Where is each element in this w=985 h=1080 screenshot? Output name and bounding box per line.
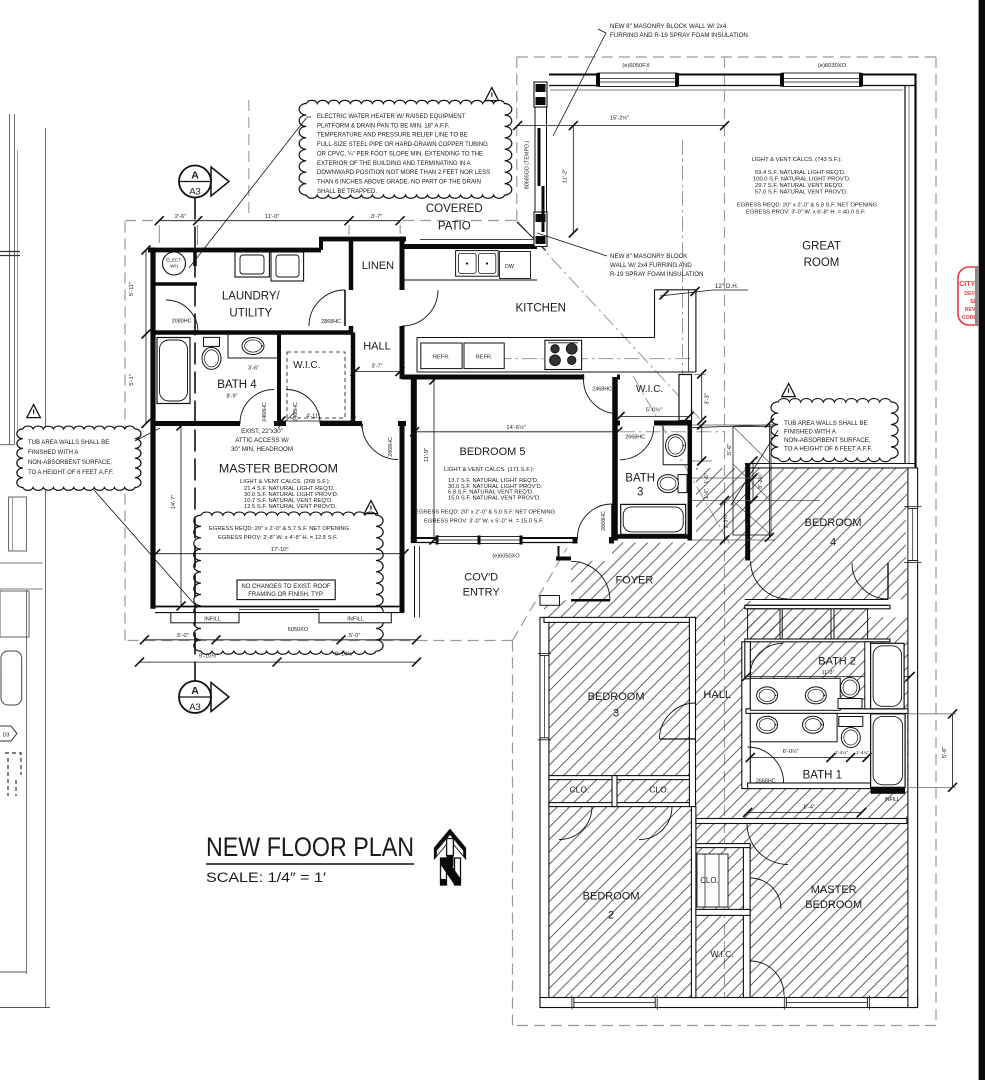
svg-text:REFR.: REFR. [433, 355, 450, 361]
svg-text:DW: DW [505, 264, 515, 270]
svg-text:15′-2½″: 15′-2½″ [610, 115, 630, 122]
svg-text:D3: D3 [3, 732, 10, 738]
svg-text:57.0 S.F. NATURAL VENT PROV′D.: 57.0 S.F. NATURAL VENT PROV′D. [755, 190, 848, 196]
svg-text:FINISHED WITH A: FINISHED WITH A [784, 428, 837, 435]
svg-text:100.0 S.F. NATURAL LIGHT PROV′: 100.0 S.F. NATURAL LIGHT PROV′D. [753, 177, 851, 183]
svg-text:W.I.C.: W.I.C. [293, 360, 320, 371]
svg-text:TO A HEIGHT OF 6 FEET A.F.F.: TO A HEIGHT OF 6 FEET A.F.F. [784, 445, 873, 452]
svg-text:GREAT: GREAT [802, 241, 841, 253]
svg-text:3′-6″: 3′-6″ [248, 366, 259, 372]
svg-text:3′-7″: 3′-7″ [371, 364, 382, 370]
svg-text:INFILL: INFILL [204, 617, 221, 623]
svg-text:CLO.: CLO. [700, 876, 719, 885]
svg-text:REFR.: REFR. [476, 355, 493, 361]
svg-text:BEDROOM: BEDROOM [805, 517, 862, 529]
svg-text:TUB AREA WALLS SHALL BE: TUB AREA WALLS SHALL BE [784, 420, 868, 427]
svg-text:5′-0½″: 5′-0½″ [646, 407, 662, 414]
svg-text:8′-4″: 8′-4″ [804, 805, 816, 811]
svg-text:BEDROOM: BEDROOM [805, 899, 862, 911]
svg-text:14′-6½″: 14′-6½″ [506, 424, 526, 431]
svg-text:8′-9″: 8′-9″ [226, 394, 237, 400]
svg-text:PATIO: PATIO [438, 221, 471, 233]
svg-text:TO A HEIGHT OF 6 FEET A.F.F.: TO A HEIGHT OF 6 FEET A.F.F. [28, 470, 114, 476]
svg-text:ELECT.: ELECT. [166, 258, 182, 263]
svg-text:EGRESS PROV: 3′-0″ W. x 5′-0″: EGRESS PROV: 3′-0″ W. x 5′-0″ H. = 15.0 … [424, 519, 544, 525]
svg-text:EGRESS REQD: 20″ x 2′-0″ & 5.: EGRESS REQD: 20″ x 2′-0″ & 5.0 S.F. NET … [737, 203, 878, 209]
svg-text:FRAMING OR FINISH, TYP.: FRAMING OR FINISH, TYP. [248, 592, 324, 598]
svg-text:INFILL: INFILL [885, 797, 900, 803]
svg-text:4: 4 [830, 537, 836, 549]
svg-text:6050XO: 6050XO [288, 627, 309, 633]
svg-text:11′-0″: 11′-0″ [265, 214, 279, 220]
svg-text:TUB AREA WALLS SHALL BE: TUB AREA WALLS SHALL BE [28, 440, 109, 446]
svg-text:14′-7″: 14′-7″ [171, 495, 177, 510]
svg-text:LIGHT & VENT CALCS. (268 S.F.): LIGHT & VENT CALCS. (268 S.F.): [240, 479, 331, 485]
svg-text:(e)6050XO: (e)6050XO [492, 554, 520, 560]
svg-text:ELECTRIC WATER HEATER W/ RAISE: ELECTRIC WATER HEATER W/ RAISED EQUIPMEN… [317, 114, 466, 120]
svg-text:11′-2″: 11′-2″ [563, 169, 569, 183]
svg-text:INFILL: INFILL [347, 617, 364, 623]
svg-text:OR CPVC, ¼″ PER FOOT SLOPE MIN: OR CPVC, ¼″ PER FOOT SLOPE MIN. EXTENDIN… [317, 151, 483, 157]
svg-text:EGRESS REQD: 20″ x 2′-0″ & 5.: EGRESS REQD: 20″ x 2′-0″ & 5.0 S.F. NET … [415, 509, 556, 515]
svg-text:A: A [191, 685, 199, 697]
svg-text:11′-9″: 11′-9″ [424, 448, 430, 462]
svg-text:HALL: HALL [703, 689, 731, 701]
svg-text:8′-2½″: 8′-2½″ [757, 472, 764, 488]
svg-text:COVERED: COVERED [426, 203, 483, 215]
svg-text:BEDROOM: BEDROOM [588, 691, 645, 703]
svg-text:1′-4¼″: 1′-4¼″ [835, 750, 848, 755]
svg-text:5′-11″: 5′-11″ [129, 282, 135, 296]
svg-text:5′-0″: 5′-0″ [349, 633, 361, 639]
svg-text:2468HC: 2468HC [262, 402, 268, 422]
svg-text:HALL: HALL [363, 340, 391, 352]
svg-text:17′-10″: 17′-10″ [271, 547, 289, 553]
svg-text:5′-6″: 5′-6″ [942, 747, 948, 759]
svg-text:NEW 8″ MASONRY BLOCK WALL W/ 2: NEW 8″ MASONRY BLOCK WALL W/ 2x4 [610, 23, 727, 30]
svg-text:LIGHT & VENT CALCS. (171 S.F.): LIGHT & VENT CALCS. (171 S.F.): [444, 467, 535, 473]
svg-text:2′-6″: 2′-6″ [175, 214, 187, 220]
svg-text:MASTER: MASTER [811, 884, 857, 896]
svg-text:KITCHEN: KITCHEN [515, 303, 565, 315]
svg-text:2468HC: 2468HC [592, 387, 612, 393]
svg-text:BATH 4: BATH 4 [217, 379, 257, 391]
svg-text:W.I.C.: W.I.C. [636, 384, 663, 395]
svg-text:BATH 1: BATH 1 [803, 769, 842, 781]
svg-text:LIGHT & VENT CALCS. (743 S.F.): LIGHT & VENT CALCS. (743 S.F.): [752, 157, 843, 163]
svg-text:FURRING AND R-19 SPRAY FOAM IN: FURRING AND R-19 SPRAY FOAM INSULATION [610, 32, 748, 39]
svg-text:15.0 S.F. NATURAL VENT PROV′D.: 15.0 S.F. NATURAL VENT PROV′D. [448, 495, 541, 501]
svg-text:CLO.: CLO. [569, 784, 589, 794]
svg-text:BEDROOM 5: BEDROOM 5 [459, 446, 525, 458]
svg-text:W.I.C.: W.I.C. [711, 949, 734, 959]
svg-text:5′-0″: 5′-0″ [177, 633, 189, 639]
svg-text:DOWNWARD POSITION NOT MORE THA: DOWNWARD POSITION NOT MORE THAN 2 FEET N… [317, 170, 490, 176]
svg-text:A3: A3 [189, 187, 201, 198]
svg-text:EGRESS PROV: 2′-8″ W. x 4′-8″: EGRESS PROV: 2′-8″ W. x 4′-8″ H. = 12.5 … [218, 535, 338, 541]
svg-text:3: 3 [637, 486, 643, 498]
svg-text:80685GD (TEMPD.): 80685GD (TEMPD.) [525, 141, 531, 190]
svg-text:ATTIC ACCESS W/: ATTIC ACCESS W/ [235, 437, 289, 444]
svg-text:SCALE: 1/4″ = 1′: SCALE: 1/4″ = 1′ [206, 870, 327, 885]
svg-text:29.7 S.F. NATURAL VENT REQ′D.: 29.7 S.F. NATURAL VENT REQ′D. [755, 183, 844, 189]
svg-text:R-19 SPRAY FOAM INSULATION: R-19 SPRAY FOAM INSULATION [610, 271, 704, 278]
svg-text:12″ O.H.: 12″ O.H. [715, 283, 739, 290]
svg-text:THAN 6 INCHES ABOVE GRADE. NO: THAN 6 INCHES ABOVE GRADE. NO PART OF TH… [317, 179, 481, 185]
svg-text:1′-6″: 1′-6″ [704, 473, 710, 483]
svg-text:1′-4¼″: 1′-4¼″ [856, 750, 869, 755]
svg-text:EXIST, 22″x30″: EXIST, 22″x30″ [241, 428, 284, 435]
svg-text:EGRESS PROV: 3′-0″ W. x 6′-8″: EGRESS PROV: 3′-0″ W. x 6′-8″ H. = 40.0 … [746, 210, 866, 216]
svg-text:5′-1″: 5′-1″ [129, 374, 135, 386]
svg-text:LINEN: LINEN [362, 260, 394, 272]
svg-text:FULL-SIZE STEEL PIPE OR HARD-D: FULL-SIZE STEEL PIPE OR HARD-DRAWN COPPE… [317, 142, 488, 148]
svg-text:BEDROOM: BEDROOM [583, 890, 640, 902]
svg-text:ROOM: ROOM [804, 257, 840, 269]
svg-text:9′-10½″: 9′-10½″ [199, 652, 219, 659]
svg-text:BATH 2: BATH 2 [818, 656, 856, 668]
svg-text:9′-10½″: 9′-10½″ [335, 650, 355, 657]
svg-text:WH: WH [170, 264, 178, 269]
svg-text:NEW 8″ MASONRY BLOCK: NEW 8″ MASONRY BLOCK [610, 253, 688, 260]
svg-text:NON-ABSORBENT SURFACE,: NON-ABSORBENT SURFACE, [784, 437, 871, 444]
svg-text:59.4 S.F. NATURAL LIGHT REQ′D.: 59.4 S.F. NATURAL LIGHT REQ′D. [755, 170, 846, 176]
svg-text:2: 2 [608, 910, 614, 922]
svg-text:EXTERIOR OF THE BUILDING AND T: EXTERIOR OF THE BUILDING AND TERMINATING… [317, 161, 471, 167]
svg-text:EGRESS REQD: 20″ x 2′-0″ & 5.: EGRESS REQD: 20″ x 2′-0″ & 5.7 S.F. NET … [209, 526, 350, 532]
svg-text:SHALL BE TRAPPED.: SHALL BE TRAPPED. [317, 189, 377, 195]
svg-text:A: A [191, 170, 199, 182]
svg-text:(e)6050FX: (e)6050FX [622, 63, 650, 69]
svg-text:11′-3″: 11′-3″ [822, 670, 835, 676]
svg-text:5′-6″: 5′-6″ [727, 444, 733, 456]
svg-text:2868HC: 2868HC [388, 437, 394, 457]
svg-text:3: 3 [613, 708, 619, 720]
svg-text:BATH: BATH [625, 472, 655, 484]
svg-text:MASTER BEDROOM: MASTER BEDROOM [219, 462, 338, 476]
svg-text:2080HC: 2080HC [172, 319, 192, 325]
svg-text:3′-3″: 3′-3″ [705, 393, 711, 405]
svg-text:2868HC: 2868HC [321, 319, 341, 325]
svg-text:NO CHANGES TO EXIST. ROOF: NO CHANGES TO EXIST. ROOF [241, 584, 330, 590]
svg-text:PLATFORM & DRAIN PAN TO BE MIN: PLATFORM & DRAIN PAN TO BE MIN. 18″ A.F.… [317, 123, 450, 129]
svg-text:UTILITY: UTILITY [229, 308, 272, 320]
svg-text:4′-11″: 4′-11″ [306, 414, 320, 420]
svg-text:12.5 S.F. NATURAL VENT PROV′D.: 12.5 S.F. NATURAL VENT PROV′D. [244, 504, 337, 510]
svg-text:FINISHED WITH A: FINISHED WITH A [28, 450, 78, 456]
svg-text:FOYER: FOYER [615, 575, 653, 587]
svg-text:3′-7″: 3′-7″ [371, 214, 383, 220]
svg-text:1′-6″: 1′-6″ [704, 489, 710, 499]
svg-text:ENTRY: ENTRY [463, 587, 501, 599]
svg-text:LAUNDRY/: LAUNDRY/ [222, 291, 281, 303]
svg-text:WALL W/ 2x4 FURRING AND: WALL W/ 2x4 FURRING AND [610, 262, 692, 269]
svg-text:CLO.: CLO. [649, 784, 669, 794]
svg-text:30″ MIN. HEADROOM: 30″ MIN. HEADROOM [231, 446, 293, 453]
svg-text:A3: A3 [189, 702, 201, 713]
svg-text:NEW FLOOR PLAN: NEW FLOOR PLAN [206, 832, 414, 862]
svg-text:COV′D: COV′D [464, 572, 498, 584]
svg-text:2668HC: 2668HC [601, 511, 607, 531]
svg-text:6′-0½″: 6′-0½″ [783, 748, 799, 755]
svg-text:2668HC: 2668HC [756, 778, 776, 784]
svg-text:(e)6030XO: (e)6030XO [818, 63, 847, 69]
svg-text:2468HC: 2468HC [293, 402, 299, 422]
svg-text:NON-ABSORBENT SURFACE,: NON-ABSORBENT SURFACE, [28, 460, 112, 466]
svg-text:2668HC: 2668HC [625, 434, 645, 440]
svg-text:TEMPERATURE AND PRESSURE RELIE: TEMPERATURE AND PRESSURE RELIEF LINE TO … [317, 133, 468, 139]
